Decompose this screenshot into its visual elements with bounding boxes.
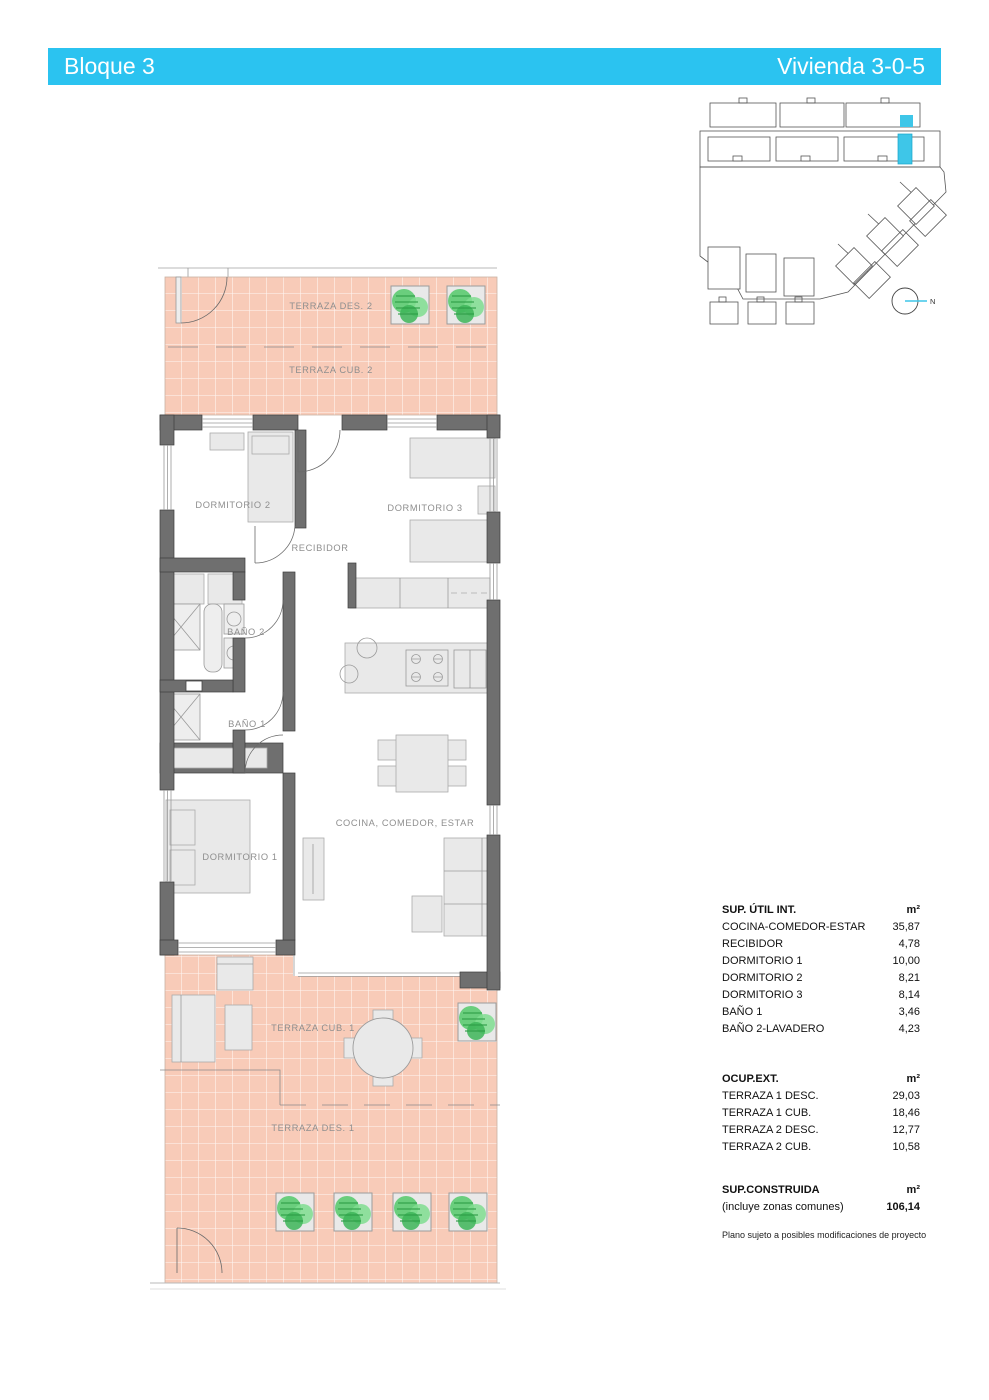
table-row: DORMITORIO 110,00 [722, 953, 920, 970]
building-blocks-row [700, 131, 940, 167]
plant-icon [458, 1003, 496, 1041]
title-bar: Bloque 3 Vivienda 3-0-5 [48, 48, 941, 85]
parking-grids-right [854, 200, 947, 299]
bed-dormitorio-3-b [410, 520, 495, 562]
table-row: TERRAZA 1 DESC.29,03 [722, 1088, 920, 1105]
outdoor-armchair [225, 1005, 252, 1050]
table-row: TERRAZA 2 DESC.12,77 [722, 1122, 920, 1139]
kitchen-island [345, 643, 490, 693]
room-label-dormitorio-3: DORMITORIO 3 [387, 503, 462, 513]
table-row: RECIBIDOR4,78 [722, 936, 920, 953]
table-row: COCINA-COMEDOR-ESTAR35,87 [722, 919, 920, 936]
kitchen-counter [350, 578, 490, 608]
table-section-header: OCUP.EXT.m² [722, 1071, 920, 1088]
bathtub [204, 604, 222, 672]
table-section-header: SUP.CONSTRUIDAm² [722, 1182, 920, 1199]
surface-table: SUP. ÚTIL INT.m²COCINA-COMEDOR-ESTAR35,8… [722, 902, 920, 1249]
footnote: Plano sujeto a posibles modificaciones d… [722, 1230, 926, 1240]
door-stub [186, 681, 202, 691]
outdoor-sofa [172, 995, 215, 1062]
outdoor-bench [217, 957, 253, 990]
plant-icon [276, 1193, 314, 1231]
table-row: DORMITORIO 28,21 [722, 970, 920, 987]
room-label-bano-2: BAÑO 2 [227, 627, 265, 637]
site-plan: N [688, 96, 958, 336]
ottoman [412, 896, 442, 932]
parking-grids-bottom [710, 297, 814, 324]
plant-icon [449, 1193, 487, 1231]
houses-bottom-left [708, 247, 814, 296]
room-label-recibidor: RECIBIDOR [291, 543, 348, 553]
terrace-2-door-leaf [176, 277, 181, 323]
living-room-extension [293, 940, 487, 976]
side-shelf [303, 838, 324, 900]
table-section: OCUP.EXT.m²TERRAZA 1 DESC.29,03TERRAZA 1… [722, 1071, 920, 1156]
room-label-dormitorio-1: DORMITORIO 1 [202, 852, 277, 862]
north-label: N [930, 297, 935, 306]
table-row: TERRAZA 1 CUB.18,46 [722, 1105, 920, 1122]
room-label-cocina: COCINA, COMEDOR, ESTAR [336, 818, 475, 828]
table-row: BAÑO 13,46 [722, 1004, 920, 1021]
room-label-dormitorio-2: DORMITORIO 2 [195, 500, 270, 510]
table-row: DORMITORIO 38,14 [722, 987, 920, 1004]
houses-diagonal [836, 182, 935, 284]
table-section-header: SUP. ÚTIL INT.m² [722, 902, 920, 919]
room-label-terraza-cub-1: TERRAZA CUB. 1 [271, 1023, 355, 1033]
room-label-terraza-cub-2: TERRAZA CUB. 2 [289, 365, 373, 375]
bed-dormitorio-3-a [410, 438, 495, 478]
table-row: TERRAZA 2 CUB.10,58 [722, 1139, 920, 1156]
plant-icon [447, 286, 485, 324]
north-arrow-icon: N [892, 288, 935, 314]
page: Bloque 3 Vivienda 3-0-5 [0, 0, 989, 1400]
block-title: Bloque 3 [64, 53, 155, 80]
room-label-bano-1: BAÑO 1 [228, 719, 266, 729]
plant-icon [393, 1193, 431, 1231]
sofa [444, 838, 490, 936]
nightstand [478, 486, 495, 514]
unit-title: Vivienda 3-0-5 [777, 53, 925, 80]
plant-icon [391, 286, 429, 324]
table-section: SUP. ÚTIL INT.m²COCINA-COMEDOR-ESTAR35,8… [722, 902, 920, 1038]
table-section: SUP.CONSTRUIDAm²(incluye zonas comunes)1… [722, 1182, 920, 1216]
room-label-terraza-des-1: TERRAZA DES. 1 [271, 1123, 354, 1133]
highlighted-parking-cell [900, 115, 913, 127]
plant-icon [334, 1193, 372, 1231]
room-label-terraza-des-2: TERRAZA DES. 2 [289, 301, 372, 311]
table-row: (incluye zonas comunes)106,14 [722, 1199, 920, 1216]
table-row: BAÑO 2-LAVADERO4,23 [722, 1021, 920, 1038]
parking-grids-top [710, 98, 920, 127]
floor-plan: TERRAZA DES. 2 TERRAZA CUB. 2 TERRAZA CU… [148, 260, 508, 1295]
highlighted-unit [898, 134, 912, 164]
